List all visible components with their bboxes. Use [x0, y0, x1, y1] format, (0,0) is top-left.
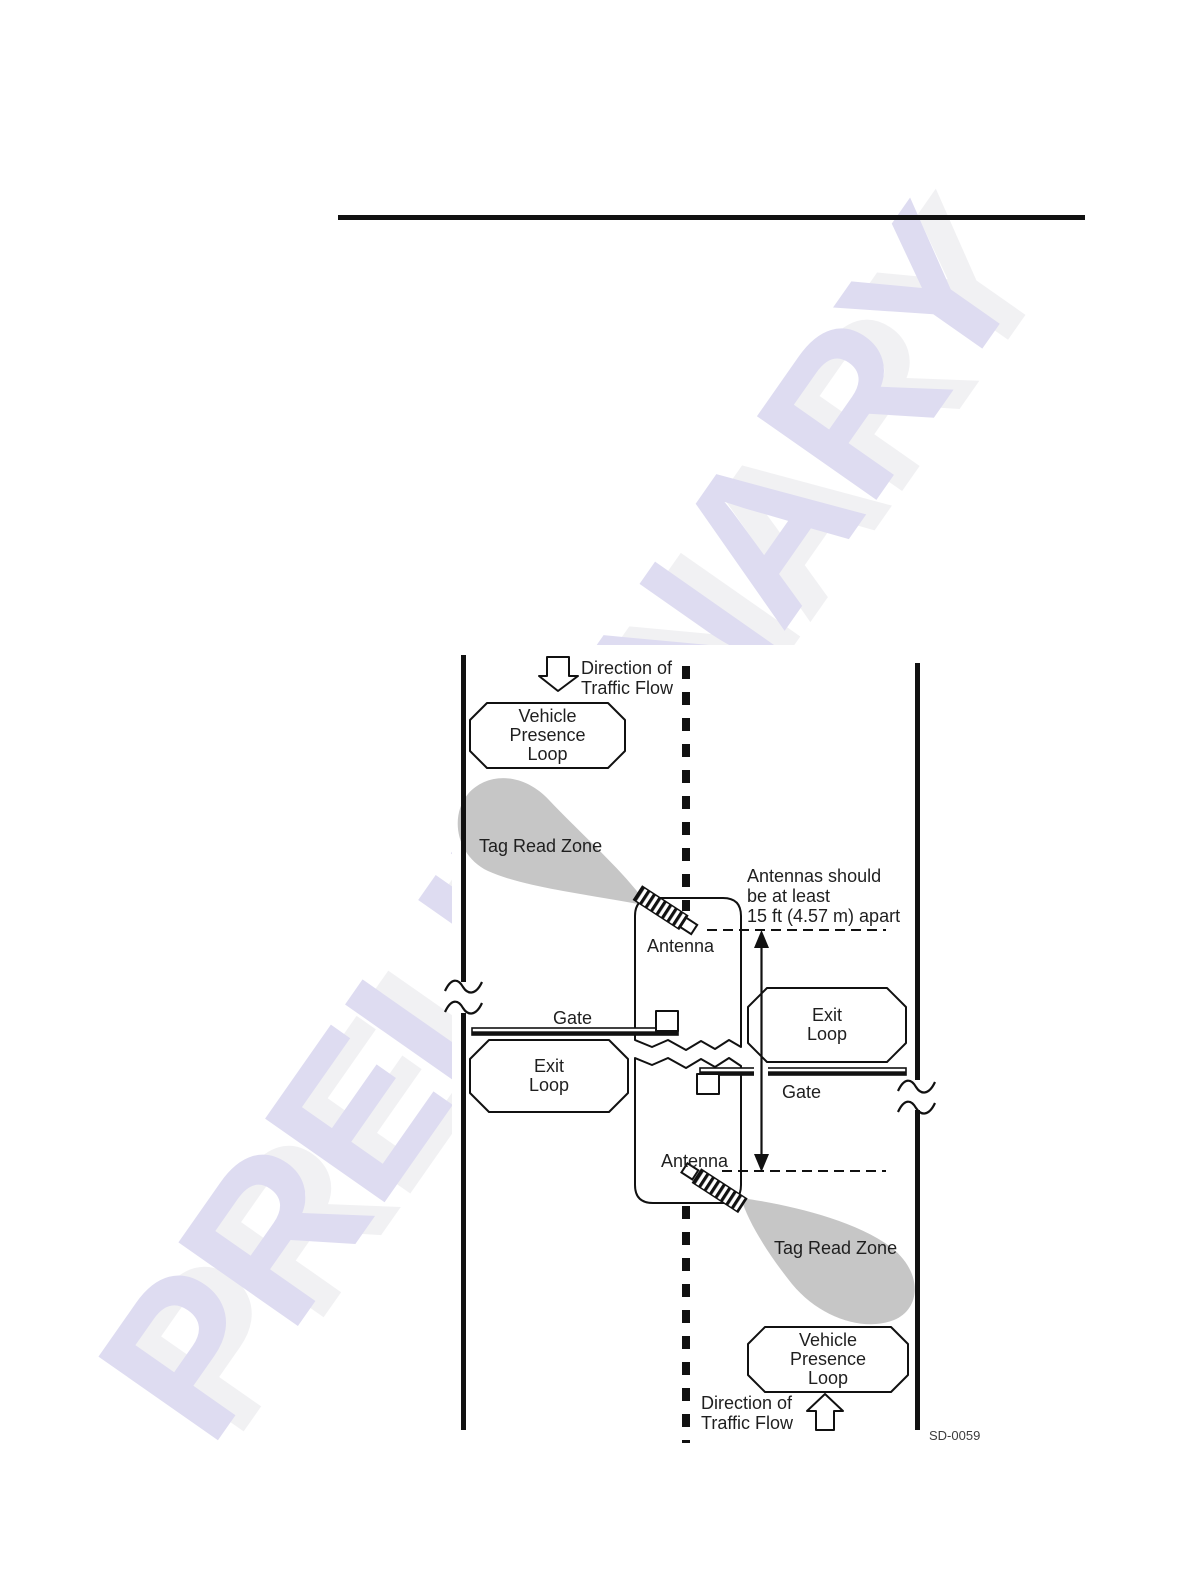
gate-left-label: Gate — [553, 1008, 592, 1028]
exit-left-line2: Loop — [529, 1076, 569, 1095]
traffic-direction-label-bottom: Direction of Traffic Flow — [701, 1393, 793, 1433]
exit-right-line1: Exit — [812, 1006, 842, 1025]
exit-left-line1: Exit — [534, 1057, 564, 1076]
header-rule — [338, 215, 1085, 220]
antenna-top-label: Antenna — [647, 936, 714, 956]
direction-bottom-line2: Traffic Flow — [701, 1413, 793, 1433]
spacing-note-line1: Antennas should — [747, 866, 900, 886]
antenna-bottom-label: Antenna — [661, 1151, 728, 1171]
gate-arm-right — [700, 1068, 906, 1075]
vpl-bottom-line3: Loop — [808, 1369, 848, 1388]
traffic-direction-label-top: Direction of Traffic Flow — [581, 658, 673, 698]
vpl-top-line1: Vehicle — [518, 707, 576, 726]
direction-top-line2: Traffic Flow — [581, 678, 673, 698]
direction-top-line1: Direction of — [581, 658, 673, 678]
vpl-bottom-line1: Vehicle — [799, 1331, 857, 1350]
vpl-bottom-line2: Presence — [790, 1350, 866, 1369]
spacing-note-line3: 15 ft (4.57 m) apart — [747, 906, 900, 926]
direction-bottom-line1: Direction of — [701, 1393, 793, 1413]
exit-right-line2: Loop — [807, 1025, 847, 1044]
island-lower — [635, 1058, 741, 1203]
document-page: PRELIMINARY — [0, 0, 1189, 1584]
tag-read-zone-bottom-label: Tag Read Zone — [774, 1238, 897, 1258]
vehicle-presence-loop-top-label: Vehicle Presence Loop — [470, 703, 625, 768]
vpl-top-line2: Presence — [509, 726, 585, 745]
gate-housing-left — [656, 1011, 678, 1031]
vpl-top-line3: Loop — [527, 745, 567, 764]
gate-housing-right — [697, 1074, 719, 1094]
antenna-spacing-note: Antennas should be at least 15 ft (4.57 … — [747, 866, 900, 926]
vehicle-presence-loop-bottom-label: Vehicle Presence Loop — [748, 1327, 908, 1392]
spacing-note-line2: be at least — [747, 886, 900, 906]
exit-loop-right-label: Exit Loop — [748, 988, 906, 1062]
figure-canvas — [0, 0, 1189, 1584]
exit-loop-left-label: Exit Loop — [470, 1040, 628, 1112]
gate-right-label: Gate — [782, 1082, 821, 1102]
figure-code: SD-0059 — [929, 1426, 980, 1446]
gate-arm-left — [472, 1028, 678, 1035]
tag-read-zone-top-label: Tag Read Zone — [479, 836, 602, 856]
